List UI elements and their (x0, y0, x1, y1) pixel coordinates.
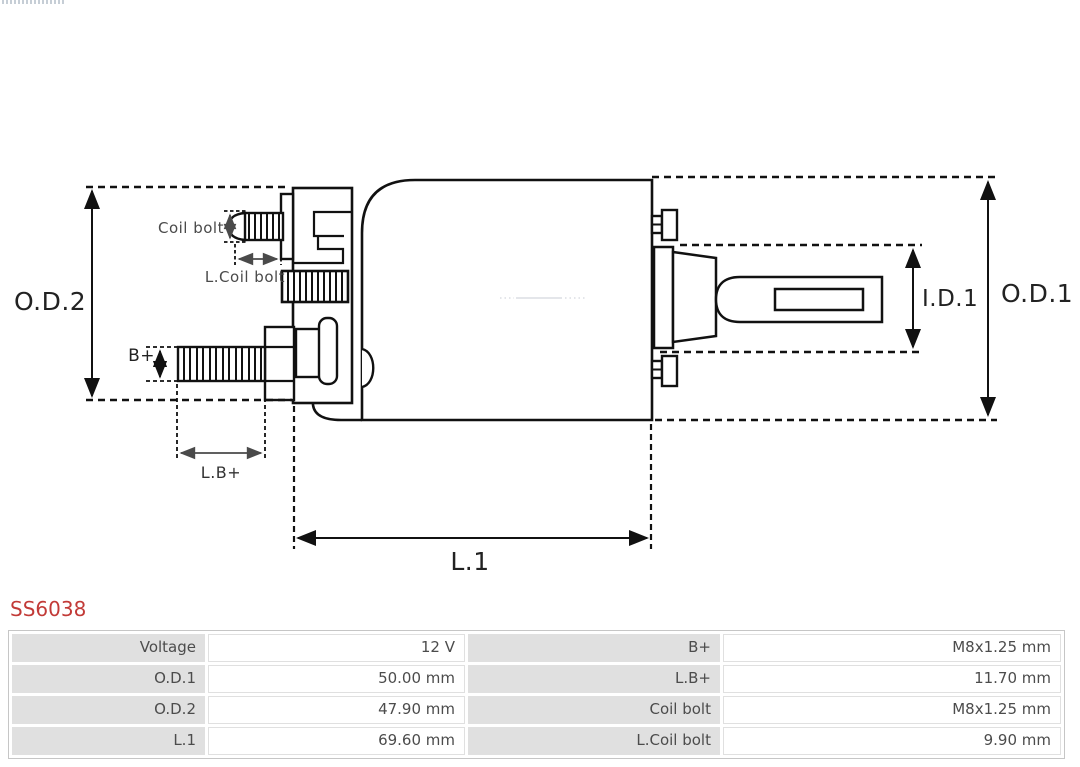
coil-bolt-terminal (229, 194, 293, 259)
coil-bolt-label: Coil bolt (158, 219, 224, 237)
spec-label: Coil bolt (468, 696, 720, 724)
spec-label: Voltage (12, 634, 205, 662)
od1-label: O.D.1 (1001, 279, 1073, 308)
spec-value: M8x1.25 mm (723, 696, 1061, 724)
spec-value: 69.60 mm (208, 727, 465, 755)
dim-l-b-plus: L.B+ (177, 384, 265, 482)
spec-value: 11.70 mm (723, 665, 1061, 693)
spec-table: Voltage 12 V B+ M8x1.25 mm O.D.1 50.00 m… (8, 630, 1065, 759)
spec-label: L.1 (12, 727, 205, 755)
l1-label: L.1 (450, 547, 489, 576)
spec-value: 47.90 mm (208, 696, 465, 724)
b-plus-label: B+ (128, 346, 155, 366)
plunger (716, 277, 882, 322)
dim-l1: L.1 (294, 406, 651, 576)
part-number: SS6038 (10, 597, 86, 621)
spec-label: L.B+ (468, 665, 720, 693)
spec-value: 12 V (208, 634, 465, 662)
dim-l-coil-bolt: L.Coil bolt (205, 244, 285, 286)
end-flange (654, 247, 716, 348)
spec-label: L.Coil bolt (468, 727, 720, 755)
spec-value: 50.00 mm (208, 665, 465, 693)
spec-value: 9.90 mm (723, 727, 1061, 755)
spec-label: O.D.1 (12, 665, 205, 693)
od2-label: O.D.2 (14, 287, 86, 316)
diagram-svg: O.D.2 O.D.1 I.D.1 L.1 B+ L.B+ Coil bolt (0, 0, 1080, 595)
l-coil-bolt-label: L.Coil bolt (205, 268, 285, 286)
id1-label: I.D.1 (922, 286, 978, 312)
spec-label: B+ (468, 634, 720, 662)
spec-value: M8x1.25 mm (723, 634, 1061, 662)
spec-label: O.D.2 (12, 696, 205, 724)
coil-thread-block (282, 271, 348, 302)
solenoid-technical-drawing: O.D.2 O.D.1 I.D.1 L.1 B+ L.B+ Coil bolt (0, 0, 1080, 595)
l-b-plus-label: L.B+ (201, 463, 241, 482)
dim-b-plus: B+ (128, 346, 178, 381)
plunger-slot (775, 289, 863, 310)
